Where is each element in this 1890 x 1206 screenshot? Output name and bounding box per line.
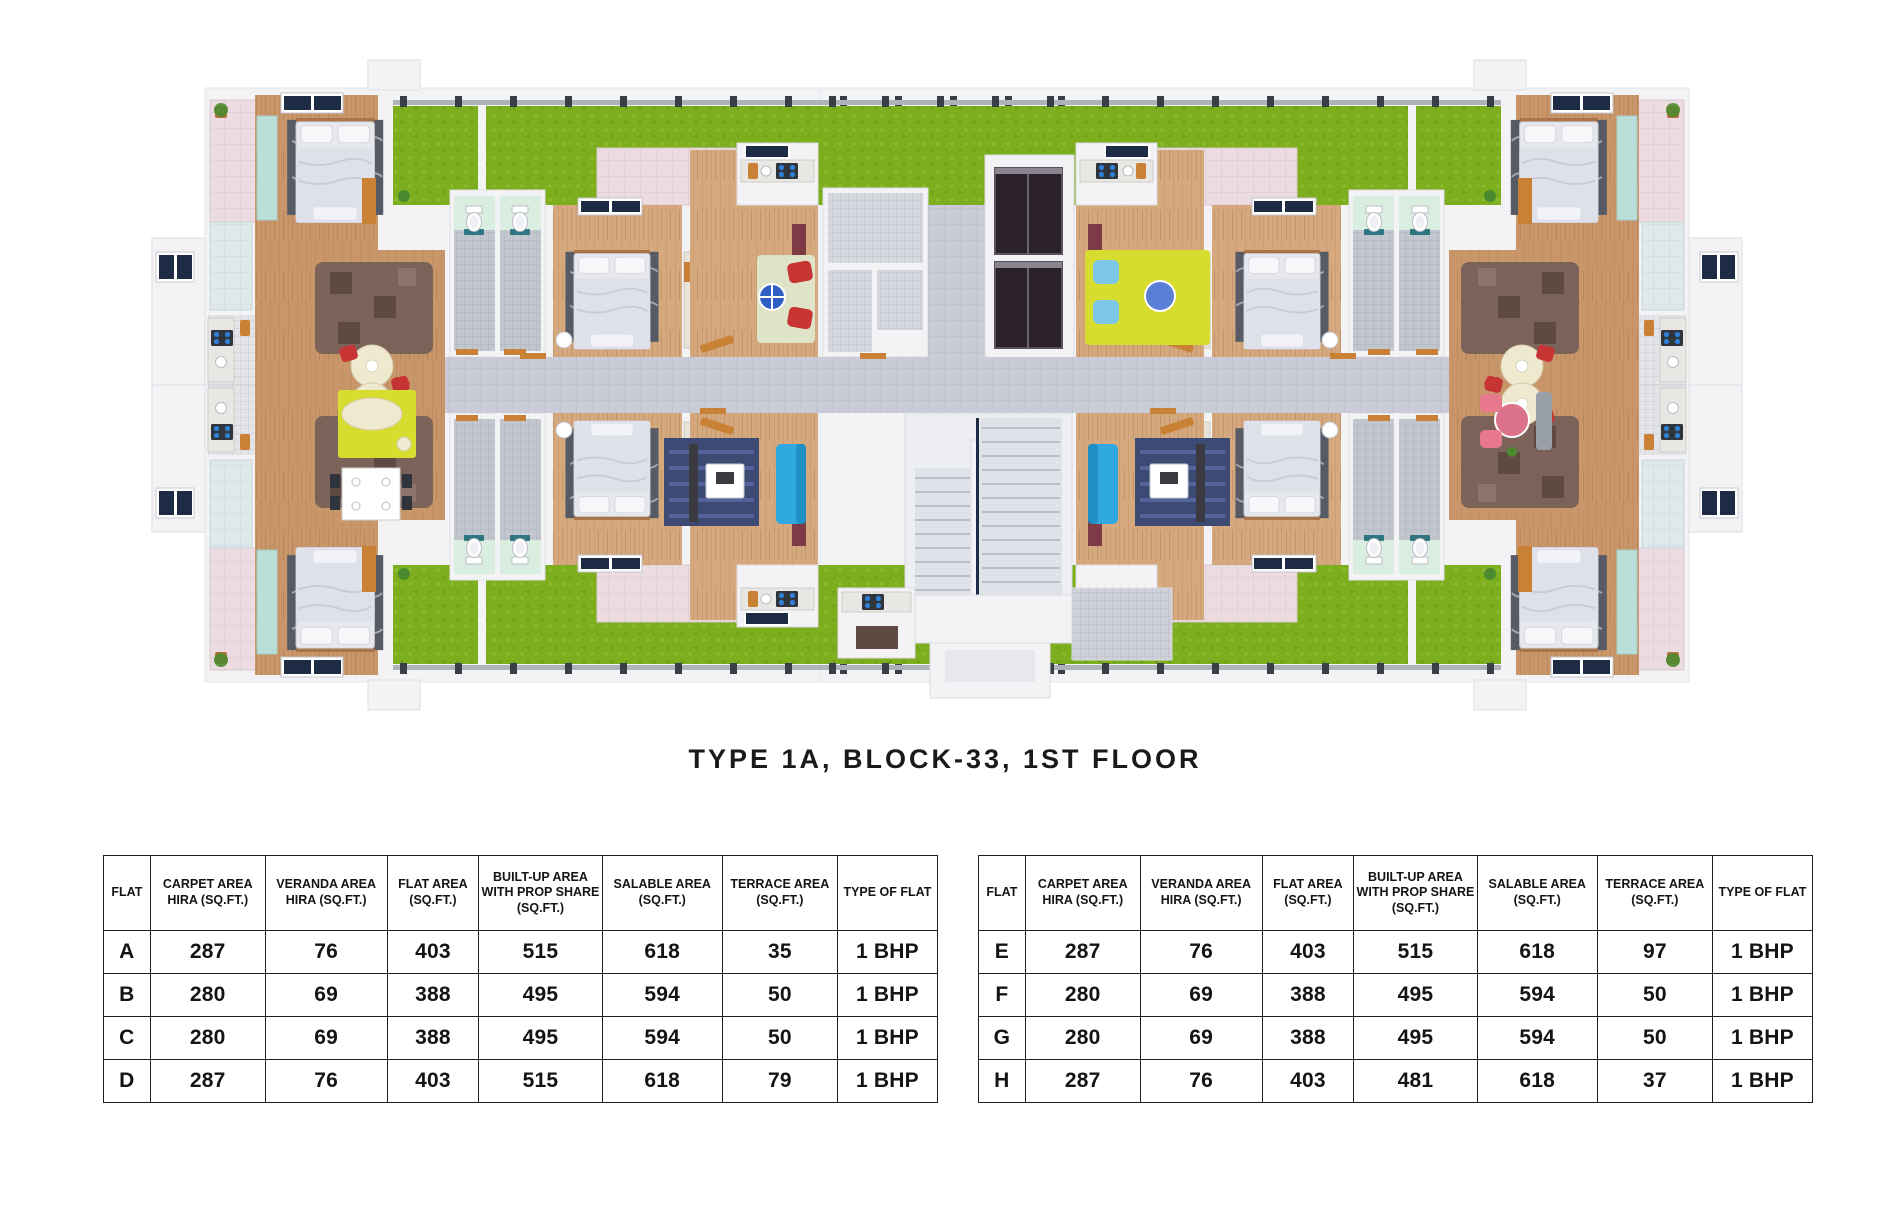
table-cell: 69 — [265, 974, 387, 1017]
door — [860, 353, 886, 359]
table-cell: B — [104, 974, 151, 1017]
header-cell: VERANDA AREA HIRA (SQ.FT.) — [1140, 856, 1262, 931]
armchair — [1093, 300, 1119, 324]
table-cell: 403 — [1262, 931, 1354, 974]
service-rooms — [823, 188, 928, 357]
table-cell: 50 — [1597, 1017, 1712, 1060]
table-cell: 618 — [602, 1060, 722, 1103]
table-cell: 618 — [602, 931, 722, 974]
table-cell: 1 BHP — [1712, 931, 1812, 974]
table-cell: 287 — [1025, 1060, 1140, 1103]
table-cell: 594 — [602, 974, 722, 1017]
table-cell: 76 — [1140, 1060, 1262, 1103]
header-cell: SALABLE AREA (SQ.FT.) — [1477, 856, 1597, 931]
table-row: B 280 69 388 495 594 50 1 BHP — [104, 974, 938, 1017]
table-cell: E — [979, 931, 1026, 974]
table-cell: 618 — [1477, 931, 1597, 974]
page-title: TYPE 1A, BLOCK-33, 1ST FLOOR — [0, 744, 1890, 775]
table-cell: 287 — [1025, 931, 1140, 974]
sofa — [1536, 392, 1552, 450]
table-cell: 79 — [722, 1060, 837, 1103]
table-cell: 515 — [1354, 931, 1477, 974]
table-cell: D — [104, 1060, 151, 1103]
table-cell: 76 — [265, 931, 387, 974]
table-cell: 495 — [1354, 1017, 1477, 1060]
table-cell: 403 — [387, 1060, 479, 1103]
table-cell: 35 — [722, 931, 837, 974]
table-cell: 495 — [1354, 974, 1477, 1017]
table-cell: 481 — [1354, 1060, 1477, 1103]
armchair — [786, 306, 813, 330]
table-cell: 594 — [1477, 1017, 1597, 1060]
header-cell: FLAT — [104, 856, 151, 931]
table-row: F 280 69 388 495 594 50 1 BHP — [979, 974, 1813, 1017]
table-cell: 1 BHP — [837, 931, 937, 974]
table-cell: 594 — [602, 1017, 722, 1060]
header-cell: BUILT-UP AREA WITH PROP SHARE (SQ.FT.) — [479, 856, 602, 931]
table-cell: 97 — [1597, 931, 1712, 974]
lobby-corridor-vertical — [928, 205, 985, 357]
table-cell: 388 — [387, 1017, 479, 1060]
header-cell: CARPET AREA HIRA (SQ.FT.) — [1025, 856, 1140, 931]
table-row: C 280 69 388 495 594 50 1 BHP — [104, 1017, 938, 1060]
header-cell: TERRACE AREA (SQ.FT.) — [1597, 856, 1712, 931]
header-cell: SALABLE AREA (SQ.FT.) — [602, 856, 722, 931]
header-cell: FLAT AREA (SQ.FT.) — [1262, 856, 1354, 931]
table-cell: 618 — [1477, 1060, 1597, 1103]
table-header-row: FLAT CARPET AREA HIRA (SQ.FT.) VERANDA A… — [104, 856, 938, 931]
table-cell: 594 — [1477, 974, 1597, 1017]
table-cell: 495 — [479, 974, 602, 1017]
door — [1150, 408, 1176, 414]
table-cell: 69 — [1140, 1017, 1262, 1060]
table-cell: 388 — [1262, 974, 1354, 1017]
table-cell: 1 BHP — [837, 1017, 937, 1060]
table-row: E 287 76 403 515 618 97 1 BHP — [979, 931, 1813, 974]
table-cell: 1 BHP — [1712, 974, 1812, 1017]
header-cell: TERRACE AREA (SQ.FT.) — [722, 856, 837, 931]
table-cell: H — [979, 1060, 1026, 1103]
elevator-shaft — [995, 262, 1062, 348]
table-cell: 69 — [1140, 974, 1262, 1017]
header-cell: BUILT-UP AREA WITH PROP SHARE (SQ.FT.) — [1354, 856, 1477, 931]
door — [1330, 353, 1356, 359]
armchair — [786, 260, 813, 284]
table-header-row: FLAT CARPET AREA HIRA (SQ.FT.) VERANDA A… — [979, 856, 1813, 931]
table-cell: 403 — [387, 931, 479, 974]
red-armchair-set — [757, 255, 815, 343]
table-cell: 76 — [1140, 931, 1262, 974]
table-cell: 495 — [479, 1017, 602, 1060]
main-corridor — [445, 353, 1449, 414]
sofa — [342, 398, 402, 430]
table-cell: 280 — [150, 1017, 265, 1060]
table-cell: 50 — [722, 974, 837, 1017]
table-cell: 280 — [1025, 1017, 1140, 1060]
header-cell: TYPE OF FLAT — [837, 856, 937, 931]
elevator-shaft — [995, 168, 1062, 254]
table-cell: 280 — [1025, 974, 1140, 1017]
table-cell: 515 — [479, 1060, 602, 1103]
table-cell: 37 — [1597, 1060, 1712, 1103]
table-row: D 287 76 403 515 618 79 1 BHP — [104, 1060, 938, 1103]
staircase — [905, 413, 1072, 698]
table-cell: F — [979, 974, 1026, 1017]
area-table-left: FLAT CARPET AREA HIRA (SQ.FT.) VERANDA A… — [103, 855, 938, 1103]
kitchen-island — [856, 626, 898, 649]
table-cell: 515 — [479, 931, 602, 974]
bottom-utility-room — [1072, 588, 1172, 660]
header-cell: TYPE OF FLAT — [1712, 856, 1812, 931]
table-cell: 388 — [387, 974, 479, 1017]
floor-plan-rendering — [0, 0, 1890, 742]
page: { "title": "TYPE 1A, BLOCK-33, 1ST FLOOR… — [0, 0, 1890, 1206]
dining-table — [330, 468, 412, 520]
round-table — [1145, 281, 1175, 311]
table-row: H 287 76 403 481 618 37 1 BHP — [979, 1060, 1813, 1103]
table-cell: 76 — [265, 1060, 387, 1103]
door — [520, 353, 546, 359]
door — [700, 408, 726, 414]
chair — [1480, 430, 1502, 448]
armchair — [1093, 260, 1119, 284]
table-cell: C — [104, 1017, 151, 1060]
bottom-kitchen — [838, 588, 915, 658]
table-cell: 280 — [150, 974, 265, 1017]
table-cell: 287 — [150, 931, 265, 974]
table-row: A 287 76 403 515 618 35 1 BHP — [104, 931, 938, 974]
yellow-rug-set — [1085, 250, 1210, 345]
cream-sofa-dining-set — [330, 390, 416, 520]
table-cell: 1 BHP — [1712, 1017, 1812, 1060]
table-cell: 1 BHP — [837, 1060, 937, 1103]
plant-icon — [1507, 447, 1517, 457]
header-cell: FLAT AREA (SQ.FT.) — [387, 856, 479, 931]
table-cell: 1 BHP — [1712, 1060, 1812, 1103]
header-cell: CARPET AREA HIRA (SQ.FT.) — [150, 856, 265, 931]
table-cell: 50 — [722, 1017, 837, 1060]
header-cell: FLAT — [979, 856, 1026, 931]
area-table-right: FLAT CARPET AREA HIRA (SQ.FT.) VERANDA A… — [978, 855, 1813, 1103]
header-cell: VERANDA AREA HIRA (SQ.FT.) — [265, 856, 387, 931]
stair-railing — [976, 418, 979, 595]
chair — [1480, 394, 1502, 412]
table-cell: 50 — [1597, 974, 1712, 1017]
table-cell: G — [979, 1017, 1026, 1060]
table-cell: A — [104, 931, 151, 974]
elevator-block — [985, 155, 1074, 360]
table-cell: 69 — [265, 1017, 387, 1060]
table-cell: 1 BHP — [837, 974, 937, 1017]
table-cell: 287 — [150, 1060, 265, 1103]
table-cell: 403 — [1262, 1060, 1354, 1103]
table-cell: 388 — [1262, 1017, 1354, 1060]
table-row: G 280 69 388 495 594 50 1 BHP — [979, 1017, 1813, 1060]
